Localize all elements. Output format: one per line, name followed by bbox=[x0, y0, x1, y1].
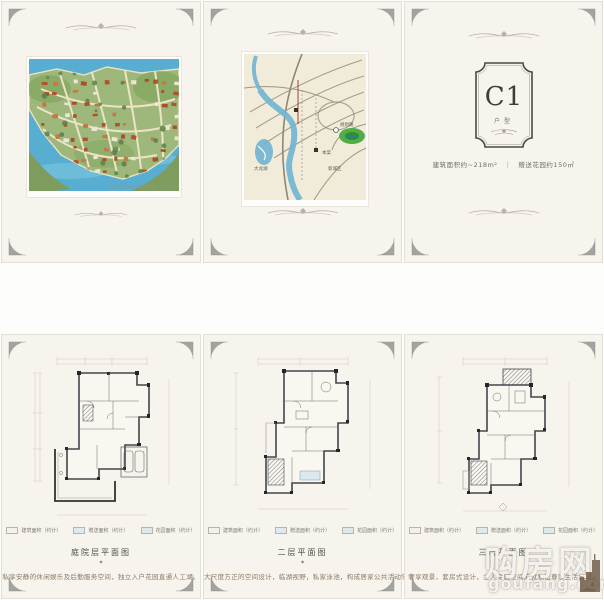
panel-unit-card: C1 户型 建筑面积约~218m² ｜ 赠送花园约150㎡ bbox=[404, 1, 603, 263]
balcony bbox=[463, 471, 469, 489]
stairs-hatch bbox=[83, 405, 93, 421]
caption-marker-icon: ◆ bbox=[204, 559, 401, 564]
corner-ornament-icon bbox=[209, 7, 229, 27]
map-art: 本案 大龙湖 规划路 新城区 bbox=[244, 54, 366, 200]
panel-floor-plan-second: 建筑面积（约计） 赠送面积（约计） 花园面积（约计） 二层平面图 ◆ 大尺度方正… bbox=[203, 334, 402, 599]
legend-swatch bbox=[141, 527, 153, 534]
legend-item: 建筑面积（约计） bbox=[6, 527, 61, 534]
location-map: 本案 大龙湖 规划路 新城区 bbox=[242, 52, 368, 206]
corner-ornament-icon bbox=[577, 237, 597, 257]
caption-marker-icon: ◆ bbox=[405, 559, 602, 564]
plan-caption: 三层平面图 bbox=[405, 547, 602, 558]
panel-masterplan: 本图为项目整体鸟瞰效果示意图，仅供参考 bbox=[1, 1, 201, 263]
legend-label: 建筑面积（约计） bbox=[424, 527, 464, 534]
panel-location-map: 本案 大龙湖 规划路 新城区 bbox=[203, 1, 402, 263]
corner-ornament-icon bbox=[376, 237, 396, 257]
legend-item: 花园面积（约计） bbox=[543, 527, 598, 534]
stairs-hatch bbox=[268, 459, 284, 485]
plan-caption: 二层平面图 bbox=[204, 547, 401, 558]
legend-swatch bbox=[73, 527, 85, 534]
legend-item: 赠送面积（约计） bbox=[476, 527, 531, 534]
legend-label: 花园面积（约计） bbox=[558, 527, 598, 534]
legend-item: 花园面积（约计） bbox=[141, 527, 196, 534]
caption-marker-icon: ◆ bbox=[2, 559, 200, 564]
plan-legend: 建筑面积（约计） 赠送面积（约计） 花园面积（约计） bbox=[2, 527, 200, 534]
corner-ornament-icon bbox=[376, 340, 396, 360]
unit-code: C1 bbox=[473, 82, 535, 112]
corner-ornament-icon bbox=[7, 237, 27, 257]
pool bbox=[300, 471, 320, 480]
plan-description: 奢享观景，套房式设计，主人专属空间成就私密尊崇生活领域。 bbox=[405, 571, 602, 581]
panel-floor-plan-courtyard: 建筑面积（约计） 赠送面积（约计） 花园面积（约计） 庭院层平面图 ◆ 私享安静… bbox=[1, 334, 201, 599]
scroll-flourish-icon bbox=[464, 204, 544, 218]
legend-item: 花园面积（约计） bbox=[342, 527, 397, 534]
map-label-lake: 大龙湖 bbox=[254, 165, 268, 172]
corner-ornament-icon bbox=[410, 340, 430, 360]
unit-plaque: C1 户型 bbox=[473, 60, 535, 150]
corner-ornament-icon bbox=[577, 340, 597, 360]
legend-item: 赠送面积（约计） bbox=[275, 527, 330, 534]
scroll-flourish-icon bbox=[263, 25, 343, 39]
legend-item: 赠送面积（约计） bbox=[73, 527, 128, 534]
scroll-flourish-icon bbox=[263, 204, 343, 218]
legend-swatch bbox=[476, 527, 488, 534]
masterplan-art: 本图为项目整体鸟瞰效果示意图，仅供参考 bbox=[29, 59, 179, 191]
unit-type-label: 户型 bbox=[473, 116, 535, 125]
corner-ornament-icon bbox=[410, 237, 430, 257]
scroll-flourish-icon bbox=[464, 27, 544, 41]
legend-item: 建筑面积（约计） bbox=[409, 527, 464, 534]
legend-swatch bbox=[275, 527, 287, 534]
corner-ornament-icon bbox=[7, 340, 27, 360]
corner-ornament-icon bbox=[209, 237, 229, 257]
corner-ornament-icon bbox=[175, 7, 195, 27]
legend-label: 赠送面积（约计） bbox=[491, 527, 531, 534]
legend-item: 建筑面积（约计） bbox=[208, 527, 263, 534]
legend-label: 建筑面积（约计） bbox=[223, 527, 263, 534]
corner-ornament-icon bbox=[175, 237, 195, 257]
plan-caption: 庭院层平面图 bbox=[2, 547, 200, 558]
unit-area-info: 建筑面积约~218m² ｜ 赠送花园约150㎡ bbox=[405, 159, 602, 169]
legend-label: 花园面积（约计） bbox=[357, 527, 397, 534]
panel-floor-plan-third: 建筑面积（约计） 赠送面积（约计） 花园面积（约计） 三层平面图 ◆ 奢享观景，… bbox=[404, 334, 603, 599]
legend-label: 花园面积（约计） bbox=[156, 527, 196, 534]
legend-label: 建筑面积（约计） bbox=[21, 527, 61, 534]
map-label-district: 新城区 bbox=[328, 165, 342, 172]
plan-legend: 建筑面积（约计） 赠送面积（约计） 花园面积（约计） bbox=[405, 527, 602, 534]
scroll-flourish-icon bbox=[61, 19, 141, 33]
plan-description: 大尺度方正的空间设计，临湖视野，私家泳池，构成居家公共活动领域。 bbox=[204, 571, 401, 581]
legend-label: 赠送面积（约计） bbox=[290, 527, 330, 534]
corner-ornament-icon bbox=[209, 340, 229, 360]
map-label-road: 规划路 bbox=[340, 121, 354, 128]
legend-swatch bbox=[208, 527, 220, 534]
plan-description: 私享安静的休闲娱乐及后勤服务空间，独立入户花园直通人工湖。 bbox=[2, 571, 200, 581]
plan-legend: 建筑面积（约计） 赠送面积（约计） 花园面积（约计） bbox=[204, 527, 401, 534]
corner-ornament-icon bbox=[577, 7, 597, 27]
corner-ornament-icon bbox=[7, 7, 27, 27]
scroll-flourish-icon bbox=[71, 204, 131, 218]
corner-ornament-icon bbox=[175, 340, 195, 360]
legend-swatch bbox=[543, 527, 555, 534]
legend-swatch bbox=[6, 527, 18, 534]
floor-plan-drawing-courtyard bbox=[27, 353, 177, 523]
legend-swatch bbox=[409, 527, 421, 534]
legend-swatch bbox=[342, 527, 354, 534]
masterplan-disclaimer: 本图为项目整体鸟瞰效果示意图，仅供参考 bbox=[109, 184, 176, 189]
stairs-hatch bbox=[471, 461, 487, 485]
roof-hatch bbox=[503, 369, 531, 385]
legend-label: 赠送面积（约计） bbox=[88, 527, 128, 534]
brochure-sheet: 本图为项目整体鸟瞰效果示意图，仅供参考 bbox=[0, 0, 604, 600]
floor-plan-drawing-third bbox=[429, 353, 579, 523]
corner-ornament-icon bbox=[410, 7, 430, 27]
aerial-rendering: 本图为项目整体鸟瞰效果示意图，仅供参考 bbox=[27, 57, 181, 197]
floor-plan-drawing-second bbox=[228, 353, 378, 523]
map-label-project: 本案 bbox=[322, 149, 331, 156]
corner-ornament-icon bbox=[376, 7, 396, 27]
